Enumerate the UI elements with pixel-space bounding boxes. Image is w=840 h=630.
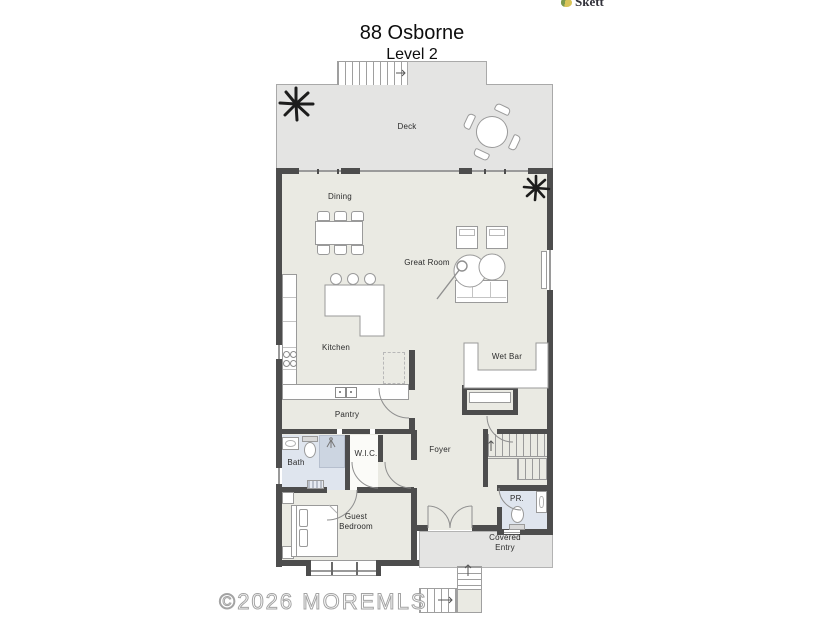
bed-pillow bbox=[299, 529, 308, 547]
room-label-pr: PR. bbox=[510, 494, 524, 504]
window-right bbox=[547, 250, 553, 290]
room-label-deck: Deck bbox=[397, 122, 416, 132]
window-left-2 bbox=[276, 468, 282, 484]
bed-pillow bbox=[299, 509, 308, 527]
wall-bath-wic bbox=[345, 435, 350, 490]
room-label-wet-bar: Wet Bar bbox=[492, 352, 522, 362]
closet-shelf bbox=[469, 392, 511, 403]
kitchen-upper-cabinet-dashed bbox=[383, 352, 405, 384]
entry-stair-vertical bbox=[457, 566, 482, 590]
dining-table bbox=[315, 221, 363, 245]
wall-foyer-west-upper bbox=[411, 430, 417, 460]
armchair-icon bbox=[486, 226, 508, 249]
brand-logo-text: Skett bbox=[575, 0, 604, 10]
dining-chair-icon bbox=[317, 245, 330, 255]
slider-tick bbox=[337, 169, 339, 174]
wall-bottom-seg bbox=[276, 560, 308, 566]
wall-pantry-south bbox=[281, 429, 413, 434]
room-label-dining: Dining bbox=[328, 192, 352, 202]
room-label-wic: W.I.C. bbox=[355, 449, 378, 459]
brand-logo: Skett bbox=[561, 0, 604, 10]
armchair-icon bbox=[456, 226, 478, 249]
kitchen-sink-icon bbox=[335, 387, 357, 397]
bay-window bbox=[306, 560, 381, 576]
wall-entry-seg bbox=[411, 525, 428, 531]
wic-floor bbox=[350, 435, 378, 490]
pr-vanity bbox=[536, 491, 547, 513]
room-label-kitchen: Kitchen bbox=[322, 343, 350, 353]
room-label-guest-bedroom: Guest Bedroom bbox=[333, 512, 379, 533]
pr-toilet-bowl-icon bbox=[511, 506, 524, 523]
pr-toilet-tank bbox=[509, 524, 525, 530]
wall-top-seg bbox=[459, 168, 472, 174]
room-label-great-room: Great Room bbox=[404, 258, 450, 268]
closet-wall-bottom bbox=[462, 410, 518, 415]
title-box: 88 Osborne Level 2 bbox=[0, 22, 824, 64]
wall-kitchen-foyer bbox=[409, 350, 415, 390]
dining-chair-icon bbox=[334, 245, 347, 255]
stair-upper-flight bbox=[488, 434, 547, 457]
closet-wall-right bbox=[513, 385, 518, 415]
entry-stair-landing bbox=[457, 589, 482, 613]
page-title: 88 Osborne bbox=[0, 22, 824, 45]
brand-logo-icon bbox=[561, 0, 572, 7]
slider-tick bbox=[317, 169, 319, 174]
deck-table-icon bbox=[471, 111, 514, 154]
deck-stair-landing bbox=[407, 61, 487, 85]
dining-chair-icon bbox=[317, 211, 330, 221]
wall-bedroom-north-seg bbox=[357, 487, 414, 493]
kitchen-counter-left bbox=[282, 274, 297, 386]
floorplan-page: Skett 88 Osborne Level 2 bbox=[0, 0, 840, 630]
shower-floor bbox=[319, 435, 345, 468]
slider-tick bbox=[484, 169, 486, 174]
room-label-foyer: Foyer bbox=[429, 445, 450, 455]
wall-entry-seg bbox=[472, 525, 497, 531]
room-label-covered-entry: Covered Entry bbox=[480, 533, 530, 554]
wall-top-seg bbox=[341, 168, 360, 174]
sofa bbox=[455, 280, 508, 303]
wall-gap bbox=[337, 429, 342, 434]
bay-jamb bbox=[376, 560, 381, 576]
wall-gap bbox=[370, 429, 375, 434]
bath-vanity bbox=[282, 437, 299, 450]
wall-right bbox=[547, 168, 553, 535]
toilet-bowl-icon bbox=[304, 442, 316, 458]
stair-lower-flight bbox=[517, 459, 547, 480]
dining-chair-icon bbox=[334, 211, 347, 221]
room-label-bath: Bath bbox=[287, 458, 304, 468]
bay-jamb bbox=[306, 560, 311, 576]
room-label-pantry: Pantry bbox=[335, 410, 359, 420]
deck-stair bbox=[337, 61, 408, 85]
stove-icon bbox=[283, 351, 296, 368]
closet-wall-top bbox=[462, 385, 518, 390]
wetbar-sink-icon bbox=[521, 373, 535, 385]
bath-mat bbox=[307, 480, 324, 489]
wall-wic-east bbox=[378, 435, 383, 462]
tv bbox=[541, 251, 547, 289]
watermark: ©2026 MOREMLS bbox=[219, 589, 428, 615]
dining-chair-icon bbox=[351, 211, 364, 221]
dining-chair-icon bbox=[351, 245, 364, 255]
closet-wall-left bbox=[462, 385, 467, 415]
nightstand bbox=[282, 492, 294, 504]
